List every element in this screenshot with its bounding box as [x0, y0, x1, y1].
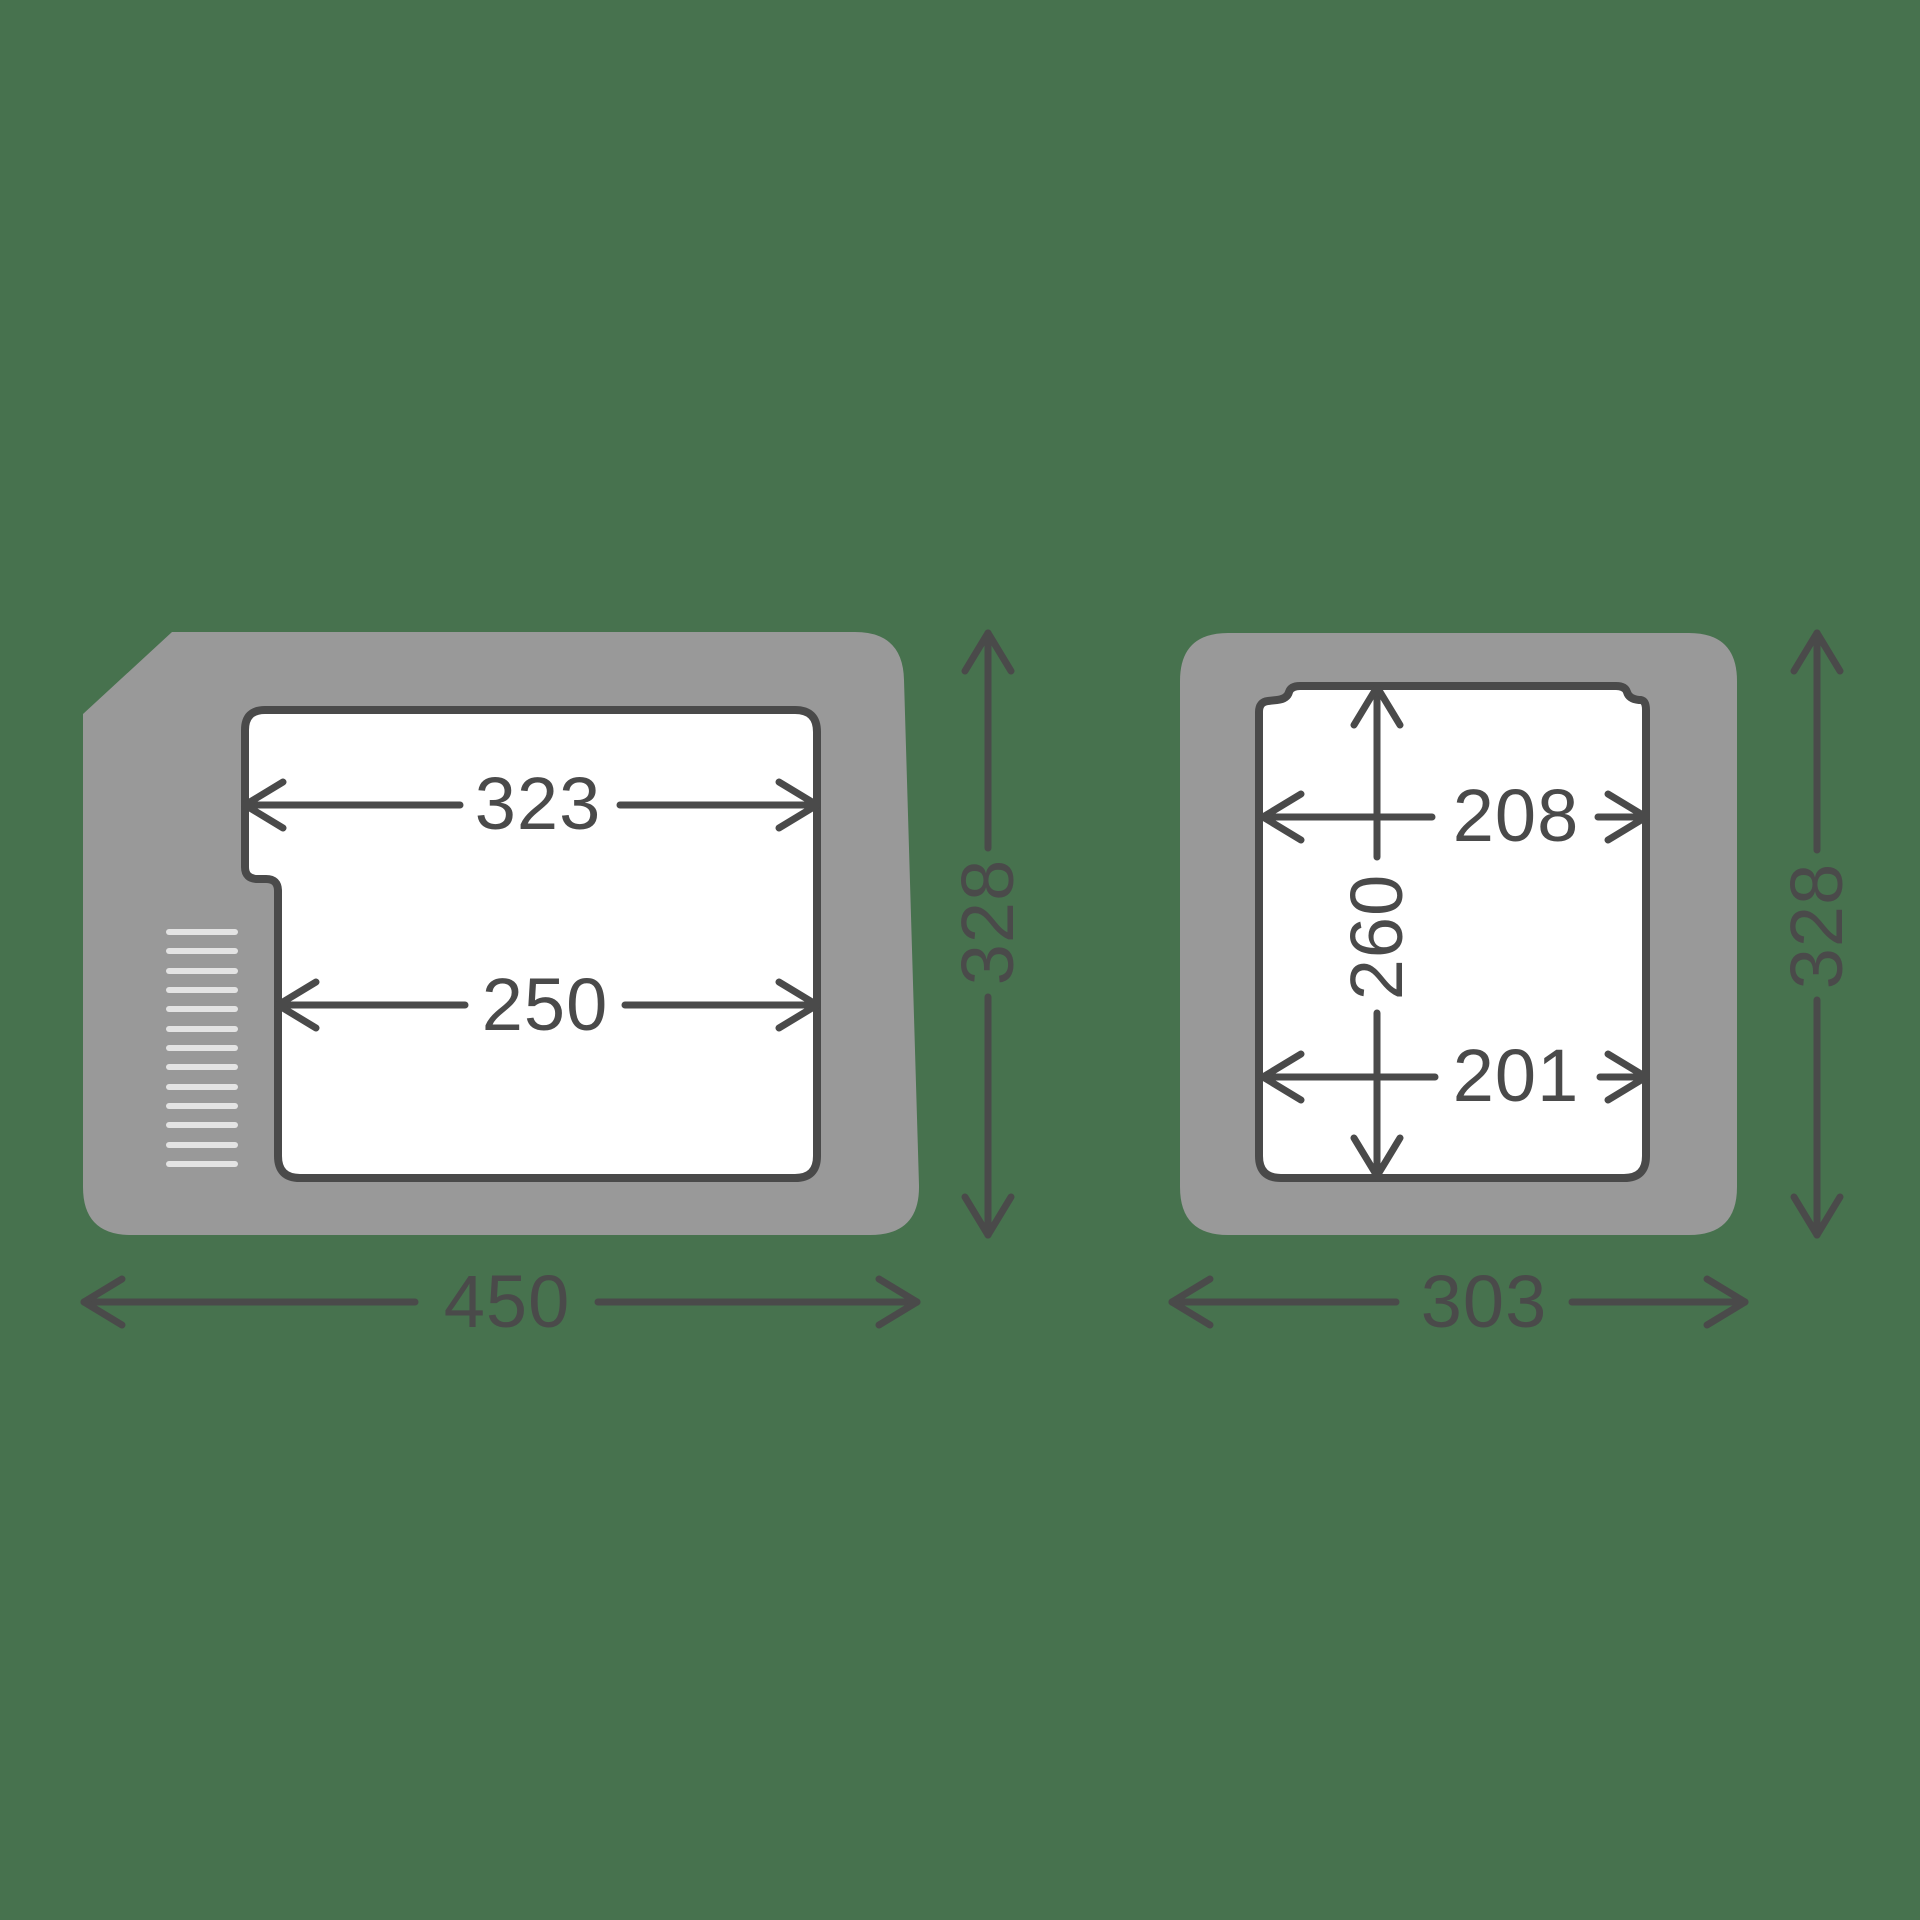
vent-line [166, 948, 238, 954]
vent-line [166, 1006, 238, 1012]
vent-line [166, 1045, 238, 1051]
vent-line [166, 1142, 238, 1148]
label-outer-height-left-view: 328 [946, 859, 1029, 985]
cooler-dimensions-diagram: 323 250 450 328 208 260 201 303 328 [0, 0, 1920, 1920]
vent-line [166, 1161, 238, 1167]
vent-line [166, 929, 238, 935]
vent-line [166, 968, 238, 974]
label-inner-height-right-view: 260 [1335, 874, 1418, 1000]
label-inner-top-width-left-view: 323 [475, 762, 601, 845]
label-outer-width-right-view: 303 [1421, 1260, 1547, 1343]
vent-line [166, 1103, 238, 1109]
label-outer-height-right-view: 328 [1775, 863, 1858, 989]
label-inner-bottom-width-left-view: 250 [482, 963, 608, 1046]
vent-line [166, 1064, 238, 1070]
vent-line [166, 1122, 238, 1128]
vent-line [166, 987, 238, 993]
label-inner-bottom-width-right-view: 201 [1453, 1034, 1579, 1117]
vent-line [166, 1026, 238, 1032]
dimension-diagram-canvas: 323 250 450 328 208 260 201 303 328 [0, 0, 1920, 1920]
label-outer-width-left-view: 450 [444, 1260, 570, 1343]
label-inner-top-width-right-view: 208 [1453, 774, 1579, 857]
vent-line [166, 1084, 238, 1090]
